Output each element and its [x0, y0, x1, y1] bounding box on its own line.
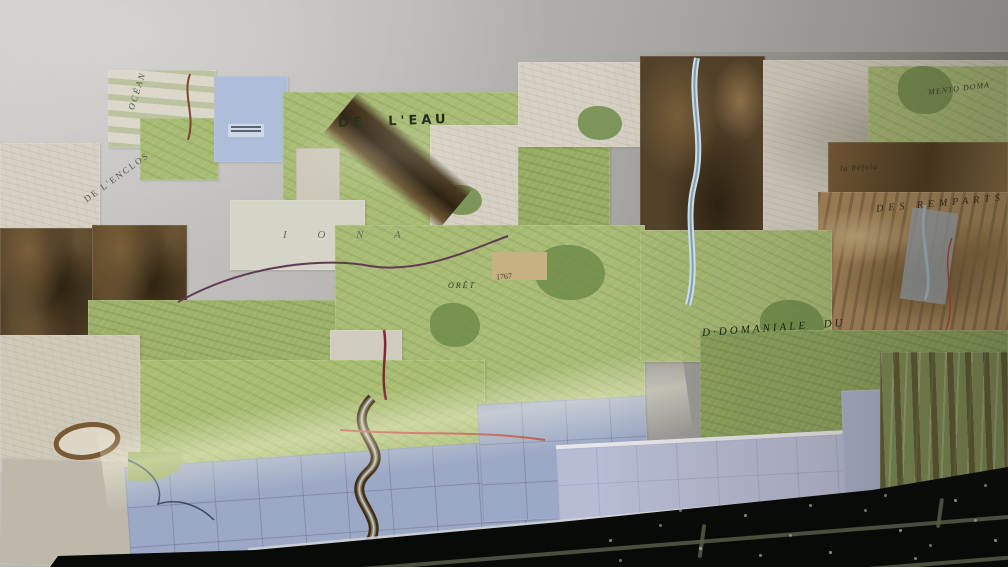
photograph-map-collage: DE L'EAU OCÉAN DE L'ENCLOS I O N A ORÊT … — [0, 0, 1008, 567]
light-glare-soft — [250, 88, 520, 218]
road-topleft — [187, 74, 190, 140]
map-label-spot-height: 1767 — [496, 271, 513, 281]
grout-line — [601, 544, 1008, 567]
shadow-right — [600, 52, 1008, 522]
map-label-foret: ORÊT — [448, 281, 476, 290]
map-label-iona: I O N A — [283, 229, 415, 241]
purple-road — [178, 236, 508, 302]
